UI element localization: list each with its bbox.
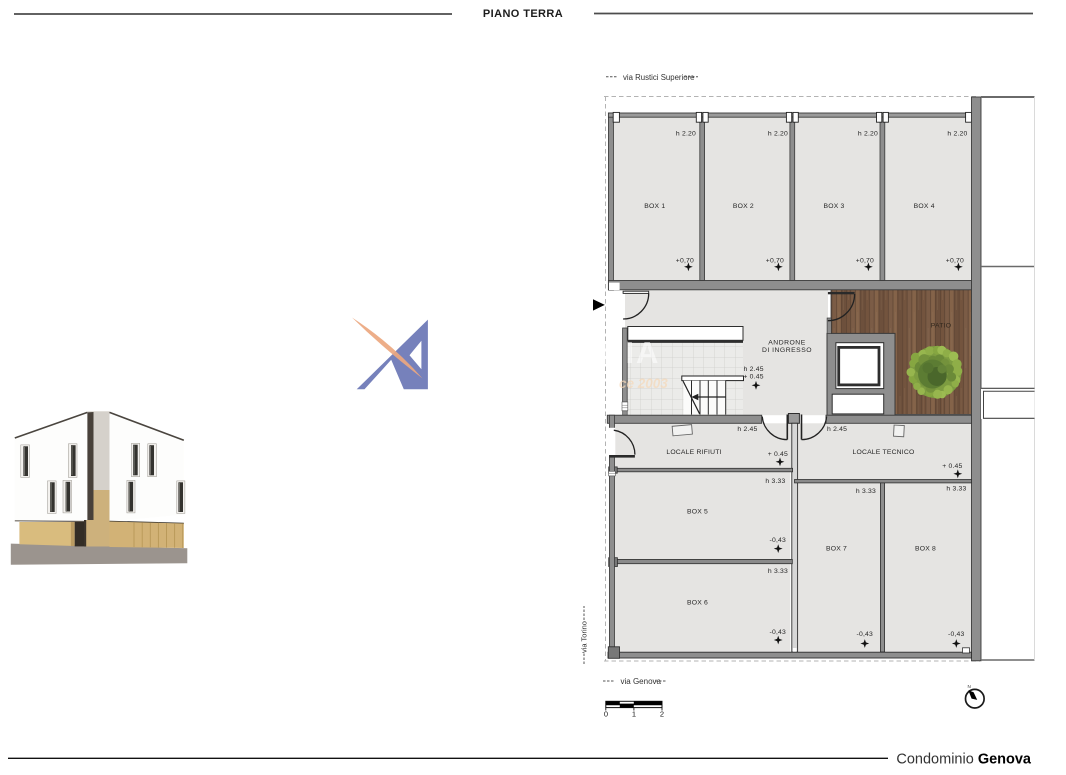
svg-text:+ 0.45: + 0.45	[768, 451, 788, 458]
svg-text:-0,43: -0,43	[948, 631, 965, 638]
svg-text:2: 2	[660, 710, 664, 719]
svg-text:+0,70: +0,70	[856, 258, 874, 265]
svg-text:via Torino: via Torino	[580, 621, 589, 653]
svg-text:1: 1	[632, 710, 636, 719]
svg-text:PATIO: PATIO	[931, 323, 951, 330]
svg-text:h 2.45: h 2.45	[744, 366, 764, 373]
svg-text:via Rustici Superiore: via Rustici Superiore	[623, 73, 695, 82]
svg-text:DI INGRESSO: DI INGRESSO	[762, 347, 812, 354]
svg-text:+ 0.45: + 0.45	[942, 463, 962, 470]
svg-text:-0,43: -0,43	[770, 629, 787, 636]
svg-text:PIANO TERRA: PIANO TERRA	[483, 8, 563, 20]
svg-text:LOCALE TECNICO: LOCALE TECNICO	[853, 449, 915, 456]
svg-text:-0,43: -0,43	[770, 537, 787, 544]
svg-text:BOX 1: BOX 1	[644, 203, 665, 210]
svg-text:h 2.20: h 2.20	[768, 131, 788, 138]
svg-text:BOX 2: BOX 2	[733, 203, 754, 210]
svg-text:BOX 6: BOX 6	[687, 600, 708, 607]
svg-text:BOX 3: BOX 3	[823, 203, 844, 210]
svg-text:BOX 5: BOX 5	[687, 509, 708, 516]
svg-text:h 3.33: h 3.33	[765, 478, 785, 485]
svg-text:N: N	[968, 684, 971, 689]
svg-text:h 3.33: h 3.33	[768, 568, 788, 575]
svg-text:Condominio Genova: Condominio Genova	[896, 752, 1032, 768]
svg-text:NIA: NIA	[601, 335, 660, 370]
svg-text:BOX 8: BOX 8	[915, 546, 936, 553]
svg-text:h 2.20: h 2.20	[676, 131, 696, 138]
svg-text:+0,70: +0,70	[946, 258, 964, 265]
svg-text:ce 2003: ce 2003	[619, 376, 668, 391]
svg-text:+0,70: +0,70	[766, 258, 784, 265]
svg-text:0: 0	[604, 710, 608, 719]
svg-text:h 2.20: h 2.20	[858, 131, 878, 138]
svg-text:LOCALE RIFIUTI: LOCALE RIFIUTI	[666, 449, 721, 456]
svg-text:h 2.20: h 2.20	[947, 131, 967, 138]
svg-text:h 2.45: h 2.45	[827, 426, 847, 433]
svg-text:h 3.33: h 3.33	[856, 488, 876, 495]
svg-text:+ 0.45: + 0.45	[743, 374, 763, 381]
svg-text:-0,43: -0,43	[857, 631, 874, 638]
svg-text:BOX 7: BOX 7	[826, 546, 847, 553]
svg-text:+0,70: +0,70	[676, 258, 694, 265]
svg-text:h 2.45: h 2.45	[737, 426, 757, 433]
svg-text:h 3.33: h 3.33	[946, 485, 966, 492]
svg-text:BOX 4: BOX 4	[914, 203, 935, 210]
svg-text:ANDRONE: ANDRONE	[768, 340, 806, 347]
